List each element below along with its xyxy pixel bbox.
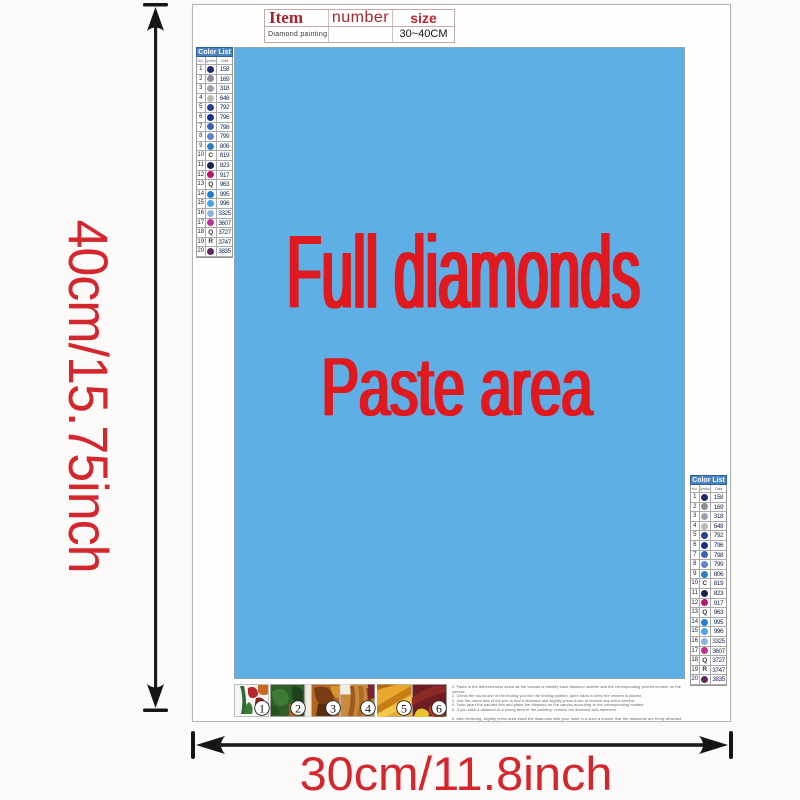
svg-text:5: 5: [401, 702, 407, 716]
svg-text:Full diamonds: Full diamonds: [289, 215, 642, 330]
svg-text:6: 6: [436, 702, 442, 716]
svg-text:2: 2: [295, 702, 301, 716]
svg-text:1: 1: [259, 702, 265, 716]
svg-text:4: 4: [365, 702, 371, 716]
svg-text:3: 3: [330, 702, 336, 716]
svg-text:Paste area: Paste area: [323, 341, 594, 434]
